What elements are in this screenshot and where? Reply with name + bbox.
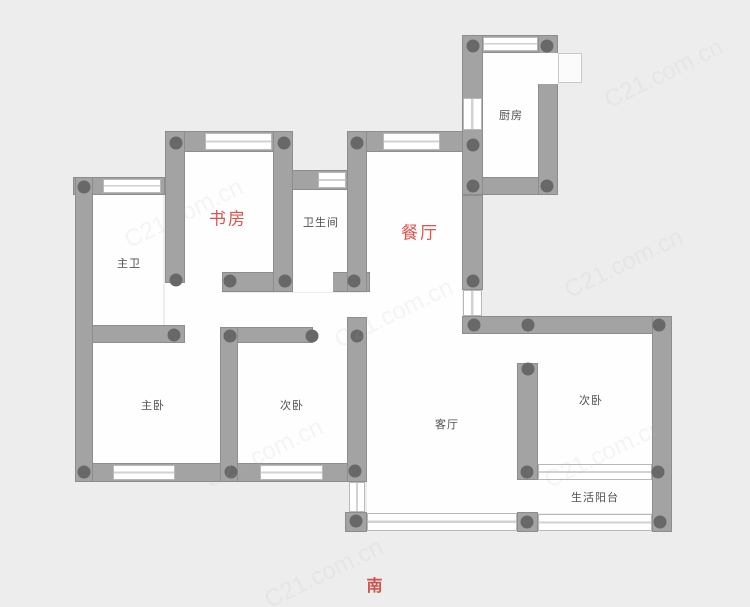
door-opening	[538, 53, 558, 84]
column-dot	[467, 180, 480, 193]
window	[260, 465, 323, 480]
window	[383, 133, 440, 150]
column-dot	[278, 137, 291, 150]
column-dot	[225, 466, 238, 479]
column-dot	[170, 274, 183, 287]
room-interior	[462, 334, 517, 513]
window	[103, 179, 161, 193]
room-label-bedroom-third: 次卧	[579, 392, 603, 408]
watermark-text: C21.com.cn	[560, 223, 687, 304]
room-label-bedroom-second: 次卧	[280, 397, 304, 413]
window	[463, 290, 482, 316]
window	[463, 98, 482, 130]
column-dot	[522, 319, 535, 332]
column-dot	[224, 275, 237, 288]
window	[367, 513, 517, 531]
column-dot	[348, 275, 361, 288]
column-dot	[522, 363, 535, 376]
window	[318, 172, 346, 188]
column-dot	[521, 466, 534, 479]
column-dot	[349, 465, 362, 478]
wall-segment	[273, 131, 293, 292]
room-label-living: 客厅	[435, 416, 459, 432]
column-dot	[652, 466, 665, 479]
floor-plan: 书房卫生间餐厅厨房主卫主卧次卧客厅次卧生活阳台 南 C21.com.cnC21.…	[0, 0, 750, 607]
column-dot	[653, 319, 666, 332]
door-opening	[293, 272, 333, 292]
room-label-master-bath: 主卫	[117, 255, 141, 271]
column-dot	[541, 40, 554, 53]
column-dot	[224, 330, 237, 343]
door-leaf	[558, 53, 582, 83]
window	[205, 133, 272, 150]
door-opening	[517, 480, 538, 512]
wall-segment	[462, 316, 672, 334]
wall-segment	[517, 363, 538, 480]
room-label-toilet: 卫生间	[303, 214, 339, 230]
wall-segment	[75, 177, 93, 482]
column-dot	[306, 330, 319, 343]
room-interior	[185, 293, 367, 327]
window	[483, 37, 538, 51]
door-opening	[185, 325, 220, 343]
compass-south-label: 南	[366, 572, 383, 596]
column-dot	[170, 137, 183, 150]
column-dot	[279, 275, 292, 288]
door-opening	[185, 272, 222, 293]
column-dot	[654, 516, 667, 529]
column-dot	[78, 181, 91, 194]
column-dot	[468, 319, 481, 332]
window	[538, 514, 652, 531]
room-label-kitchen: 厨房	[499, 107, 523, 123]
room-label-dining: 餐厅	[401, 219, 439, 244]
column-dot	[168, 329, 181, 342]
wall-segment	[347, 131, 367, 292]
column-dot	[78, 466, 91, 479]
column-dot	[351, 330, 364, 343]
window	[538, 464, 652, 480]
door-opening	[165, 283, 185, 325]
column-dot	[541, 180, 554, 193]
column-dot	[351, 137, 364, 150]
room-interior	[367, 152, 462, 513]
wall-segment	[165, 131, 185, 283]
watermark-text: C21.com.cn	[600, 33, 727, 114]
room-label-study: 书房	[209, 205, 247, 230]
column-dot	[467, 40, 480, 53]
column-dot	[350, 515, 363, 528]
column-dot	[467, 275, 480, 288]
column-dot	[521, 516, 534, 529]
room-label-service-balcony: 生活阳台	[571, 489, 619, 505]
window	[349, 482, 365, 512]
wall-segment	[652, 316, 672, 532]
door-opening	[517, 334, 538, 363]
wall-segment	[220, 327, 238, 482]
column-dot	[467, 139, 480, 152]
room-interior	[293, 190, 348, 273]
room-label-master-bedroom: 主卧	[141, 397, 165, 413]
window	[113, 465, 175, 480]
